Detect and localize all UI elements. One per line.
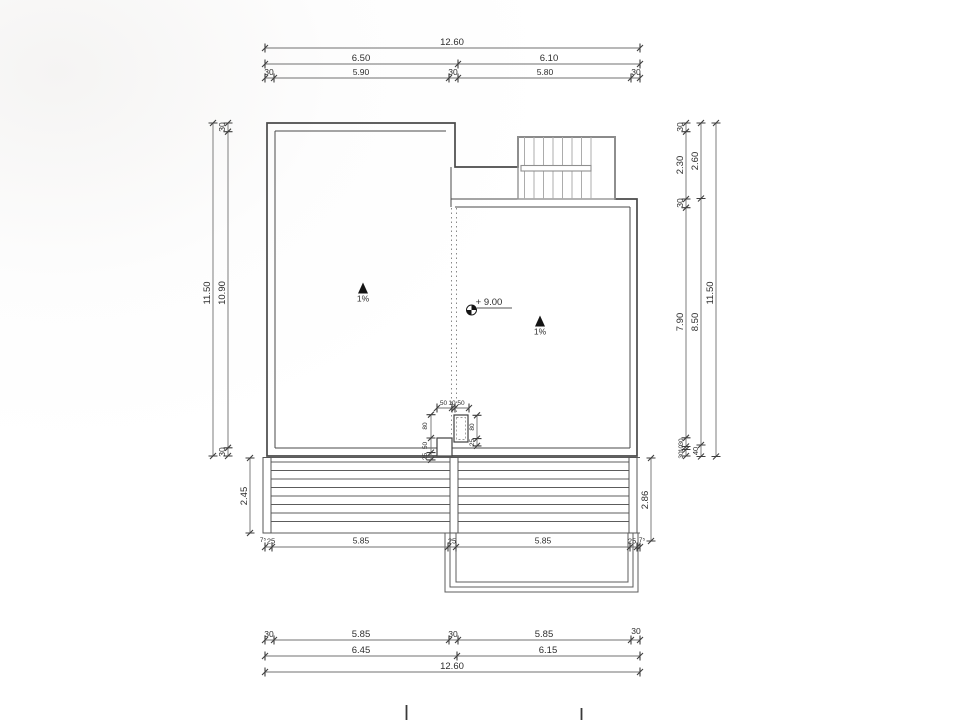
dim-label: 80 [469,423,476,431]
deck-post-left [263,458,271,534]
dim-label: 30 [631,67,641,77]
dim-label: 5.85 [535,536,552,546]
dim-label: 25 [267,537,275,546]
dim-label: 6.15 [539,645,558,656]
dim-label: 5.90 [353,67,370,77]
dim-label: 30 [675,198,685,208]
dim-label: 5.85 [352,629,371,640]
stair-handrail [521,166,591,172]
slope-arrow-right: 1% [534,316,547,337]
dimension-labels: 12.60 6.50 6.10 30 5.90 30 5.80 30 11.50… [202,37,716,672]
stairs [518,137,615,199]
dim-label: 30 [448,67,458,77]
dim-label: 80 [422,422,429,430]
level-marker: + 9.00 [467,297,513,315]
deck-post-right [629,458,637,534]
dim-label: 50 [422,442,429,450]
slope-label-left: 1% [357,294,370,304]
dim-label: 10.90 [217,281,228,305]
dim-label: 6.50 [352,53,371,64]
dim-label: 5.80 [537,67,554,77]
slope-arrow-left: 1% [357,283,370,304]
dim-label: 25 [422,453,429,461]
dim-label: 6.10 [540,53,559,64]
dim-label: 5.85 [353,536,370,546]
dim-label: 10 [678,445,685,453]
level-label: + 9.00 [476,297,503,308]
terrace-deck [263,458,640,534]
dim-label: 50 [457,400,465,407]
dim-label: 8.50 [690,313,701,332]
dim-top-total: 12.60 [440,37,464,48]
dim-label: 30 [217,122,227,132]
dim-label: 30 [631,626,641,636]
dim-label: 40 [691,447,700,455]
dim-left-outer: 11.50 [202,281,213,304]
dim-label: 30 [264,629,274,639]
dim-label: 25 [469,439,476,447]
dim-label: 30 [675,122,685,132]
dim-label: 50 [440,400,448,407]
roof-plan-drawing: 1% 1% + 9.00 12.60 6.50 6.10 30 5.90 30 … [0,0,960,720]
dim-right-outer: 11.50 [705,281,716,304]
dim-label: 6.45 [352,645,371,656]
roof-box-left [437,438,452,456]
dim-label: 30 [678,451,685,459]
dim-label: 2.30 [675,156,686,175]
dim-label: 5.85 [535,629,554,640]
dim-bottom-total: 12.60 [440,661,464,672]
dim-label: 7.90 [675,313,686,332]
drawing-page: 1% 1% + 9.00 12.60 6.50 6.10 30 5.90 30 … [0,0,960,720]
dim-label: 30 [678,438,685,446]
dim-right-deck: 2.86 [640,491,651,510]
dim-label: 2.60 [690,152,701,171]
dim-label: 10 [448,400,456,407]
dim-label: 7⁵ [260,537,267,544]
slope-label-right: 1% [534,327,547,337]
section-cut-marks [407,705,582,720]
dim-label: 25 [448,537,456,546]
roof-boxes [437,415,468,456]
deck-post-middle [450,458,458,534]
dim-label: 30 [448,629,458,639]
dim-label: 25 [628,537,636,546]
dim-left-deck: 2.45 [239,487,250,506]
dim-label: 30 [264,67,274,77]
dim-label: 30 [217,447,227,457]
dim-label: 7⁵ [639,537,646,544]
